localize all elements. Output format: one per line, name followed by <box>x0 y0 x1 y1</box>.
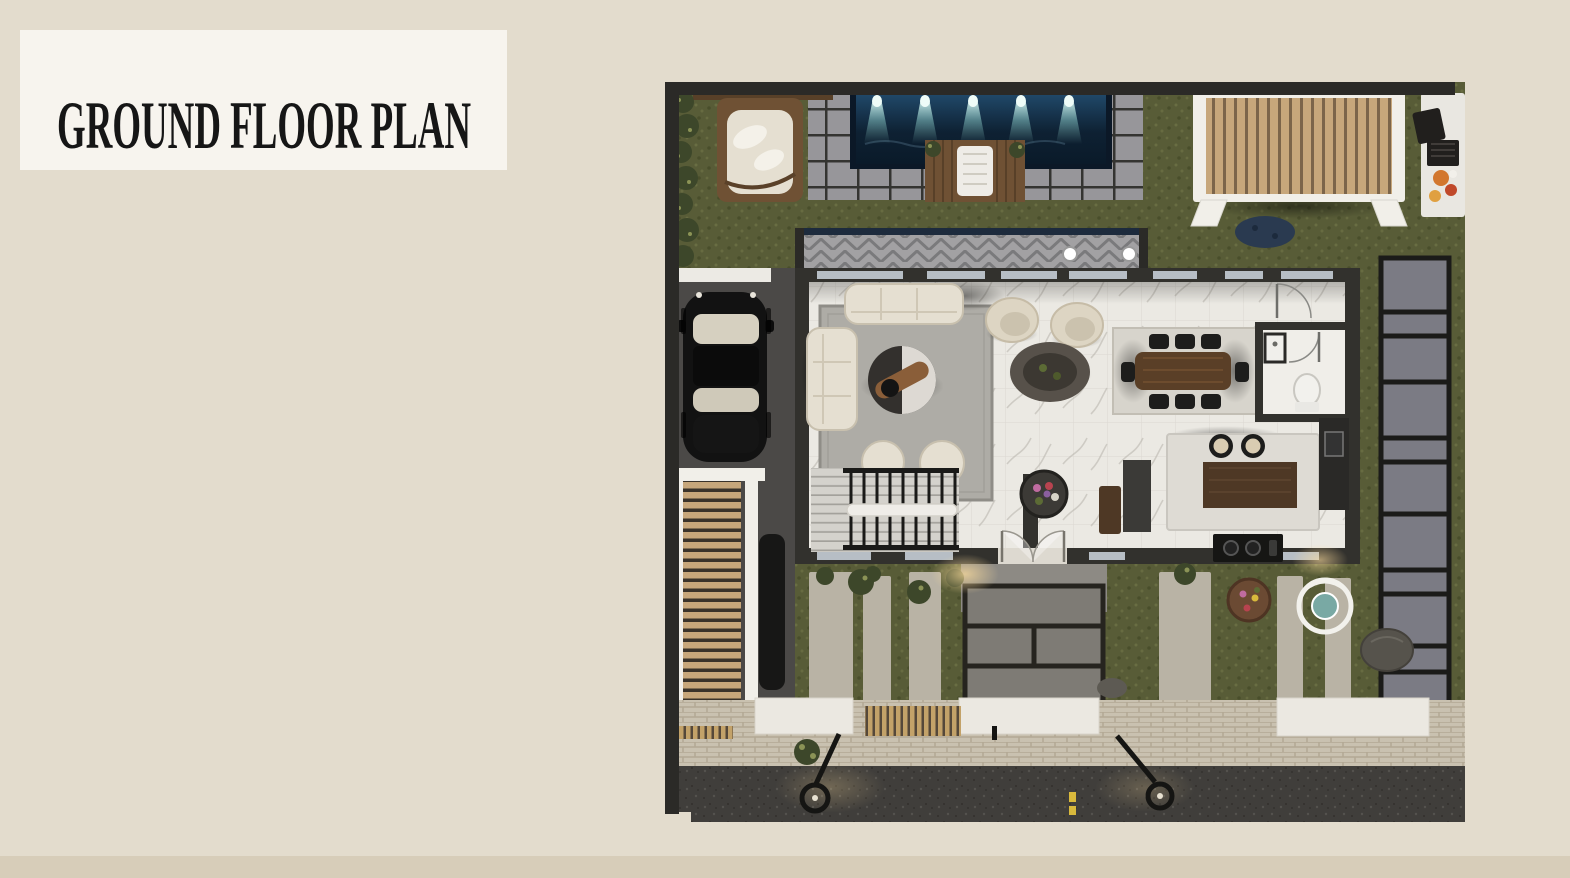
page-title: GROUND FLOOR PLAN <box>57 87 471 163</box>
handrail <box>847 504 957 516</box>
pool-area <box>808 91 1143 202</box>
blue-shrub <box>1235 216 1295 248</box>
concrete-pad <box>755 698 853 734</box>
pool-deck <box>925 140 1025 202</box>
floor-plan-render <box>665 82 1465 822</box>
deck-plant <box>925 141 941 157</box>
entry-cabinet <box>1123 460 1151 532</box>
title-box: GROUND FLOOR PLAN <box>20 30 507 170</box>
second-car <box>759 534 785 690</box>
dining-area <box>1113 328 1257 414</box>
sidewalk <box>679 698 1465 768</box>
framed-panels <box>965 586 1103 704</box>
coffee-table <box>868 346 936 414</box>
sofa-long <box>845 284 963 324</box>
small-boulder <box>1097 678 1127 698</box>
wood-grate <box>865 706 961 736</box>
deck-spotlight <box>1063 247 1077 261</box>
title-svg: GROUND FLOOR PLAN <box>20 30 507 170</box>
flower-planter <box>1021 471 1067 517</box>
gate-wall <box>679 268 771 282</box>
slide: GROUND FLOOR PLAN <box>0 0 1570 878</box>
concrete-pad <box>959 698 1099 734</box>
bathroom-sink <box>1265 334 1285 362</box>
concrete-pad <box>1277 698 1429 736</box>
terrace-deck <box>795 228 1148 275</box>
toilet <box>1294 374 1320 406</box>
parked-car <box>677 292 774 462</box>
garden-pouf <box>1228 579 1270 621</box>
living-room <box>801 281 1005 500</box>
sidewalk-bush <box>794 739 820 765</box>
bottom-band <box>0 856 1570 878</box>
driveway <box>677 268 795 730</box>
staircase <box>811 468 959 552</box>
deck-plant <box>1009 142 1025 158</box>
wood-grate <box>679 726 733 739</box>
deck-spotlight <box>1122 247 1136 261</box>
bollard <box>992 726 997 740</box>
boulder <box>1361 629 1413 671</box>
house <box>795 268 1360 564</box>
entry-console <box>1099 486 1121 534</box>
sofa-side <box>807 328 857 430</box>
carport <box>677 468 765 719</box>
